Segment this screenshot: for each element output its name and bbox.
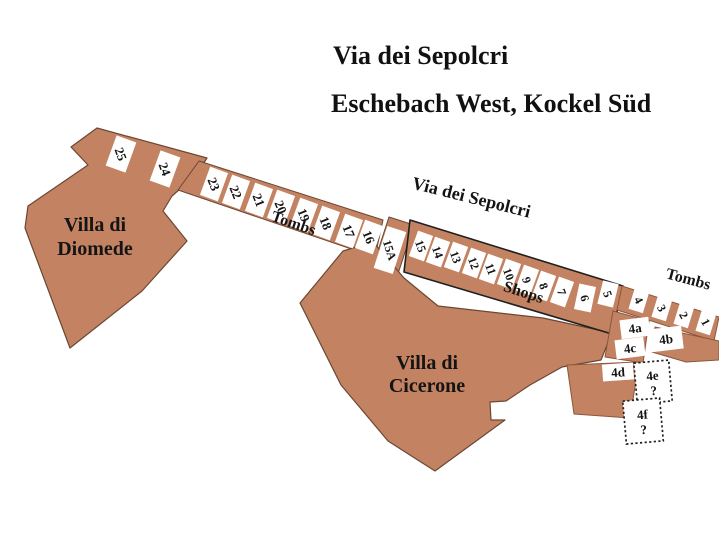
tombs-east-label: Tombs: [664, 266, 713, 294]
map-svg: 2524232221201918171615A15141312111098765…: [0, 0, 719, 538]
plot-number: 4a: [628, 320, 643, 337]
plot-number: 4f: [636, 407, 649, 423]
map-box-text-4c: 4c: [623, 340, 637, 356]
plot-number: ?: [650, 383, 658, 399]
tombs-east-label-line-1: Tombs: [664, 266, 713, 294]
map-box-text-4b: 4b: [658, 331, 673, 348]
plot-number: ?: [640, 422, 648, 438]
plot-number: 4e: [646, 367, 660, 383]
villa-cicerone-label-line-2: Cicerone: [389, 375, 465, 397]
villa-cicerone-label: Villa diCicerone: [389, 352, 465, 397]
street-label: Via dei Sepolcri: [410, 173, 533, 222]
villa-cicerone-label-line-1: Villa di: [396, 352, 458, 374]
map-box-text-4d: 4d: [611, 364, 627, 380]
map-box-text-4a: 4a: [628, 320, 643, 337]
plot-number: 4b: [658, 331, 673, 348]
street-label-line-1: Via dei Sepolcri: [410, 173, 533, 222]
map-page: Via dei Sepolcri Eschebach West, Kockel …: [0, 0, 719, 538]
plot-number: 4c: [623, 340, 637, 356]
villa-diomede-label-line-1: Villa di: [64, 214, 126, 236]
villa-diomede-label-line-2: Diomede: [57, 238, 133, 260]
plot-number: 4d: [611, 364, 627, 380]
